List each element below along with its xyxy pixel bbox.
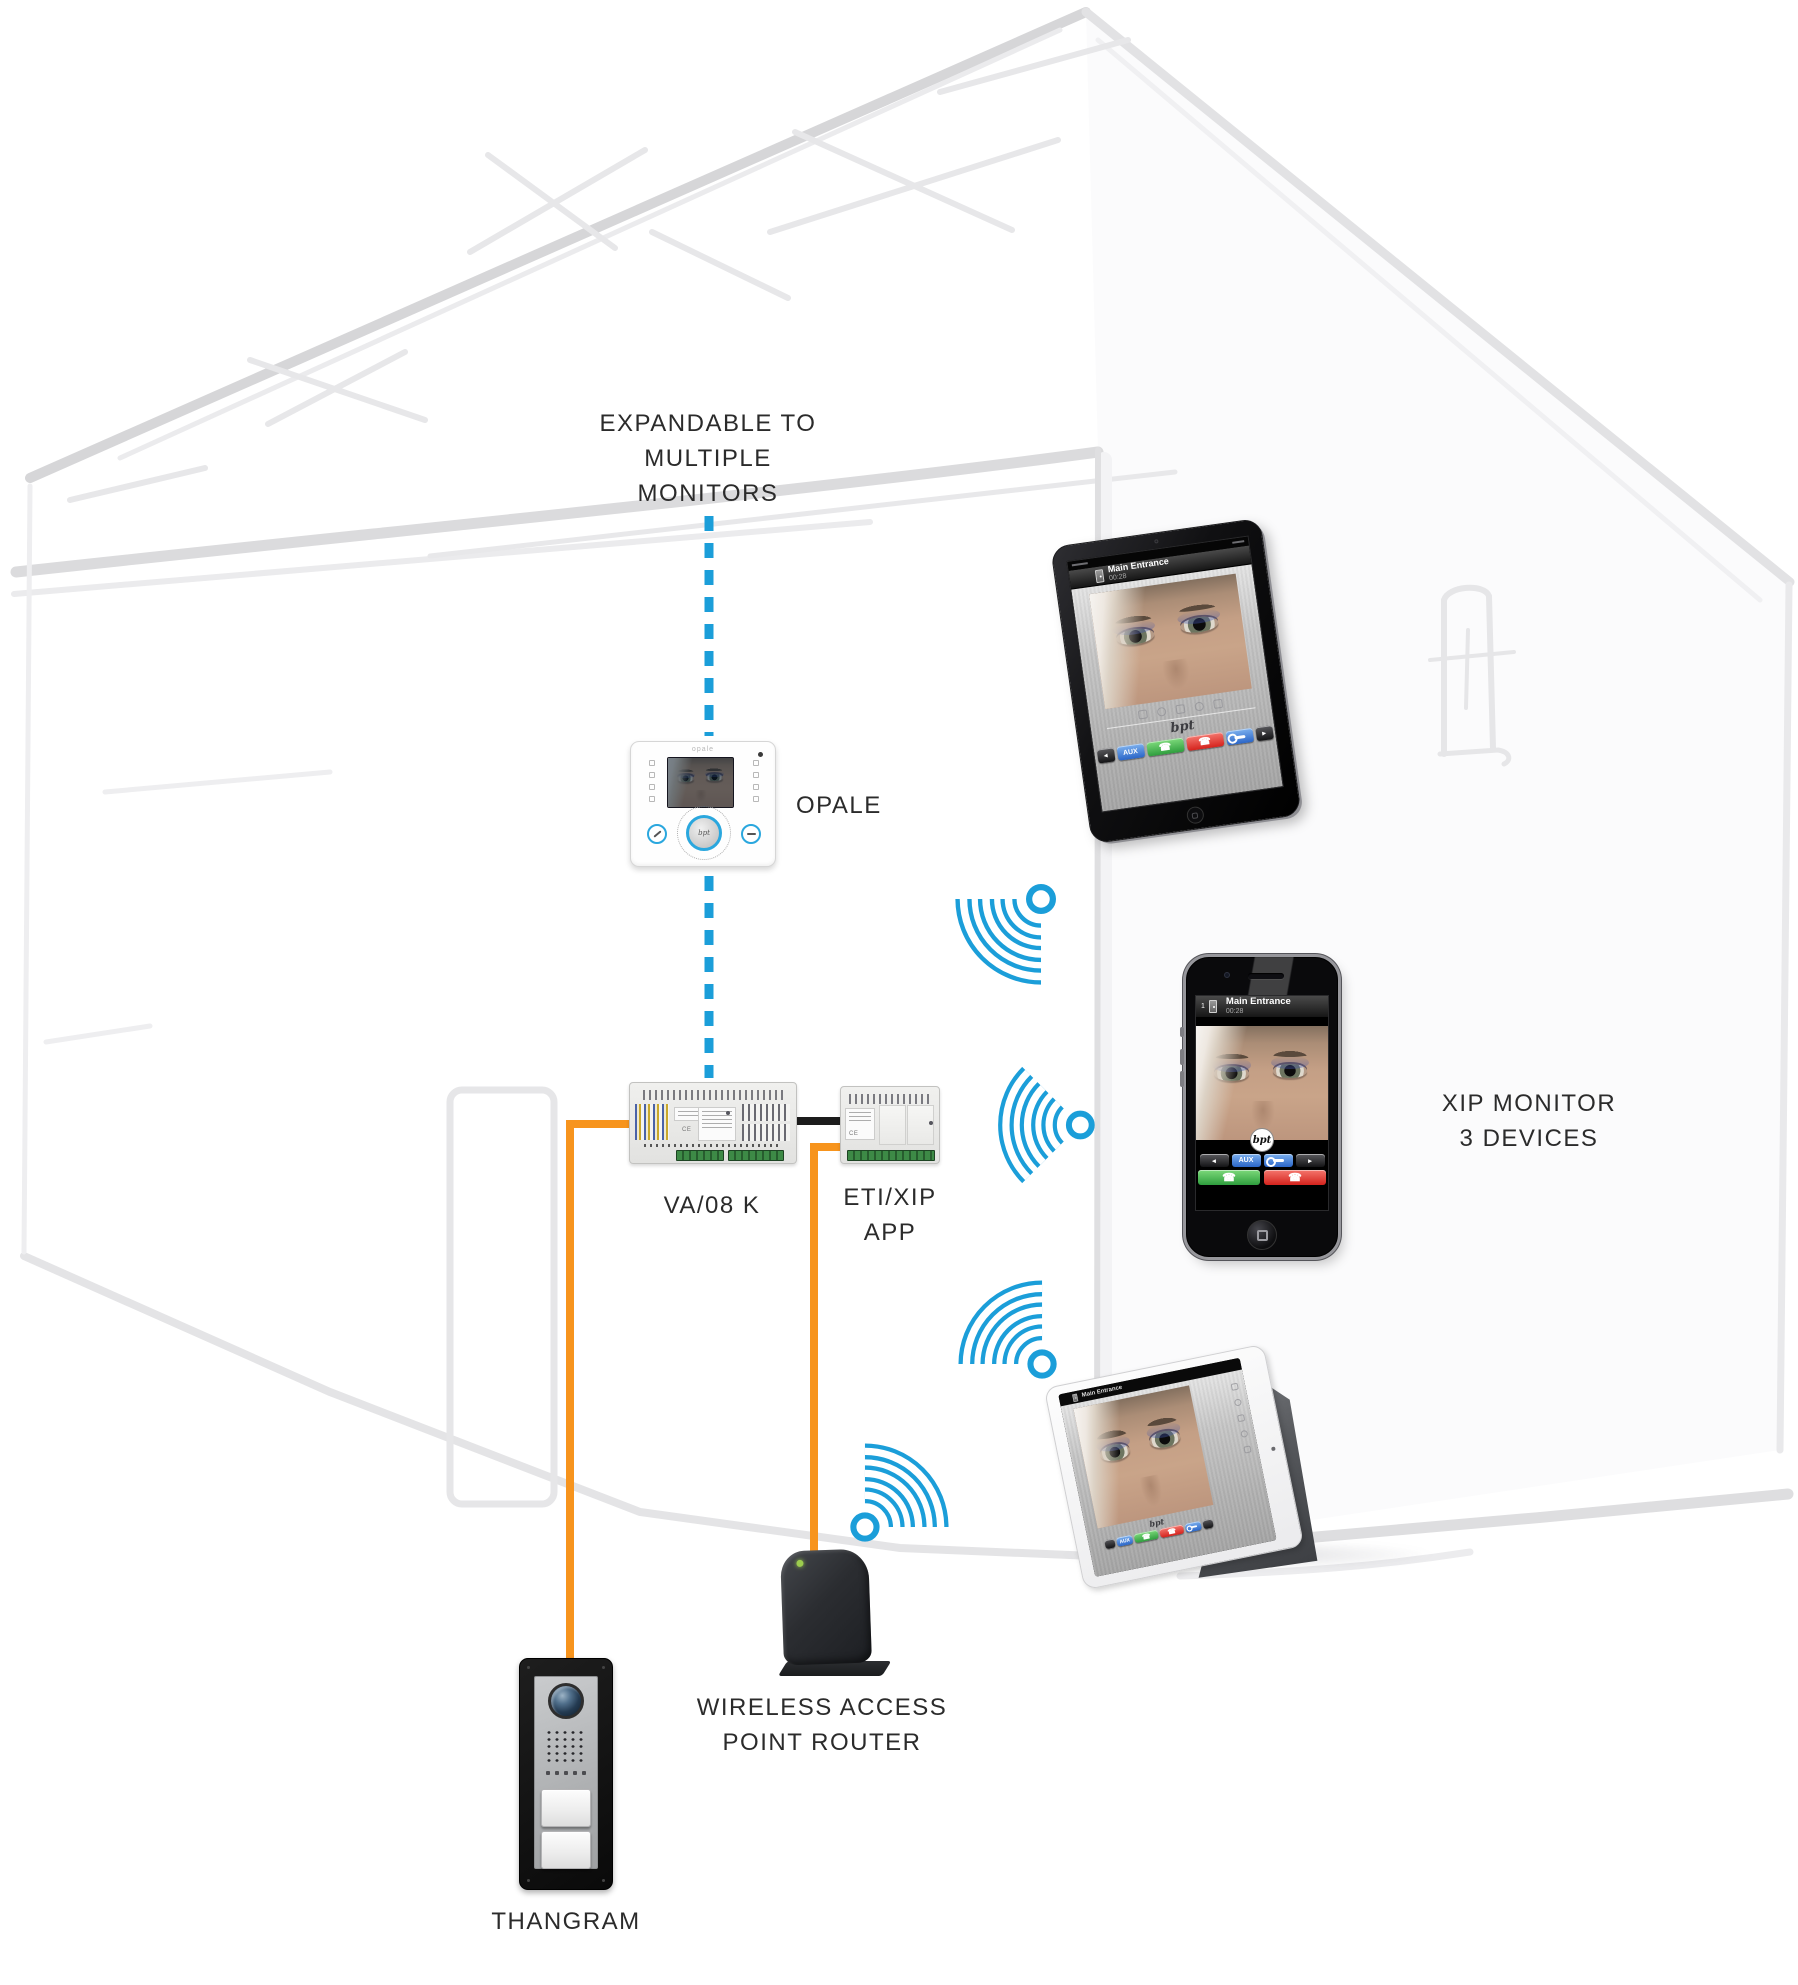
vent-slots	[643, 1090, 782, 1100]
spacer	[1196, 1018, 1328, 1026]
call-bar: 1 Main Entrance 00:28	[1196, 996, 1328, 1018]
thangram-entry-panel	[519, 1658, 613, 1890]
aux-button: AUX	[1116, 743, 1145, 761]
screw	[527, 1666, 530, 1669]
expandable-line1: EXPANDABLE TO	[600, 406, 817, 441]
hangup-button: ☎	[1185, 732, 1224, 751]
screw	[602, 1666, 605, 1669]
terminal-slats	[635, 1104, 669, 1140]
visitor-video	[1073, 1385, 1213, 1528]
entrance-icon	[1209, 1000, 1217, 1013]
router-body	[780, 1548, 872, 1665]
screen-tint	[668, 758, 733, 807]
jog-dial: bpt	[686, 815, 722, 851]
visitor-video	[1196, 1026, 1328, 1140]
call-button-2	[541, 1831, 591, 1869]
entrance-icon	[1072, 1393, 1078, 1402]
entrance-icon	[1095, 569, 1105, 583]
roof-hatch-marks	[46, 40, 1128, 1042]
va08k-module: CE	[629, 1082, 797, 1164]
vent-slats	[742, 1124, 790, 1141]
spec-label	[698, 1107, 736, 1141]
answer-button	[647, 824, 667, 844]
door-release-button	[1225, 728, 1254, 746]
router-line2: POINT ROUTER	[697, 1725, 948, 1760]
app-panel: bpt AUX ☎ ☎	[1061, 1370, 1277, 1577]
volume-down-button	[1180, 1071, 1184, 1087]
vent-slats	[742, 1104, 790, 1121]
camera-next-button: ▸	[1255, 725, 1274, 741]
etixip-line2: APP	[843, 1215, 936, 1250]
mute-switch	[1180, 1027, 1184, 1037]
tablet-screen: Main Entrance bpt AUX ☎ ☎	[1058, 1358, 1276, 1577]
green-terminal	[728, 1150, 784, 1161]
aux-button: AUX	[1116, 1535, 1133, 1547]
wifi-icon	[966, 1288, 1053, 1375]
xip-line2: 3 DEVICES	[1442, 1121, 1616, 1156]
door-release-button	[1264, 1154, 1293, 1167]
front-panel	[907, 1105, 934, 1145]
camera-prev-button: ◂	[1096, 747, 1115, 763]
speaker-grille	[545, 1729, 587, 1765]
opale-screen	[667, 757, 734, 808]
iphone-screen: 1 Main Entrance 00:28 bpt ◂ AUX ▸	[1195, 995, 1329, 1211]
etixip-module: CE	[840, 1086, 940, 1164]
front-camera-icon	[1224, 972, 1230, 978]
iphone-device: 1 Main Entrance 00:28 bpt ◂ AUX ▸	[1186, 957, 1338, 1257]
bpt-logo: bpt	[1169, 718, 1195, 736]
ce-mark: CE	[682, 1127, 691, 1133]
expandable-label: EXPANDABLE TO MULTIPLE MONITORS	[600, 406, 817, 511]
function-icons-right	[753, 760, 759, 802]
wifi-icon	[964, 887, 1053, 976]
tablet-device: Main Entrance bpt AUX ☎ ☎	[1044, 1344, 1305, 1591]
house-sketch	[0, 0, 1798, 1985]
expandable-line2: MULTIPLE	[600, 441, 817, 476]
router-label: WIRELESS ACCESS POINT ROUTER	[697, 1690, 948, 1760]
router-line1: WIRELESS ACCESS	[697, 1690, 948, 1725]
answer-button: ☎	[1134, 1530, 1159, 1544]
front-panel	[879, 1105, 906, 1145]
line-badge: 1	[1201, 1003, 1205, 1010]
aux-button-row: ◂ AUX ▸	[1200, 1154, 1325, 1167]
opale-print: opale	[631, 746, 775, 753]
indicator-dot	[726, 1111, 730, 1115]
earpiece-speaker	[1248, 973, 1284, 979]
thangram-label: THANGRAM	[491, 1904, 640, 1939]
screw	[602, 1879, 605, 1882]
opale-monitor: opale bpt	[630, 741, 776, 867]
answer-button: ☎	[1198, 1170, 1260, 1185]
green-terminal	[676, 1150, 724, 1161]
answer-button-row: ☎ ☎	[1198, 1170, 1326, 1185]
xip-monitor-label: XIP MONITOR 3 DEVICES	[1442, 1086, 1616, 1156]
ipad-device: Main Entrance 00:28 bpt ◂ AUX ☎ ☎	[1050, 518, 1302, 845]
volume-up-button	[1180, 1049, 1184, 1065]
ce-mark: CE	[849, 1131, 858, 1137]
panel-faceplate	[534, 1676, 598, 1869]
function-icons-left	[649, 760, 655, 802]
camera-lens	[548, 1683, 584, 1719]
mute-button	[741, 824, 761, 844]
indicator-dot	[929, 1121, 933, 1125]
expandable-line3: MONITORS	[600, 476, 817, 511]
opale-label: OPALE	[796, 788, 882, 823]
hangup-button: ☎	[1159, 1524, 1184, 1538]
hangup-button: ☎	[1264, 1170, 1326, 1185]
status-led	[796, 1560, 803, 1567]
signal-icons	[535, 1771, 597, 1775]
green-terminal	[847, 1150, 935, 1161]
visitor-video	[1089, 574, 1252, 709]
call-controls: bpt ◂ AUX ▸ ☎ ☎	[1196, 1140, 1328, 1210]
wifi-icon	[853, 1451, 940, 1538]
camera-next-button: ▸	[1296, 1154, 1325, 1167]
va08k-label: VA/08 K	[664, 1188, 761, 1223]
etixip-line1: ETI/XIP	[843, 1180, 936, 1215]
ipad-screen: Main Entrance 00:28 bpt ◂ AUX ☎ ☎	[1066, 536, 1284, 813]
etixip-label: ETI/XIP APP	[843, 1180, 936, 1250]
proximity-sensor	[758, 752, 763, 757]
vent-slots	[849, 1094, 931, 1104]
aux-button: AUX	[1232, 1154, 1261, 1167]
answer-button: ☎	[1146, 738, 1185, 757]
app-panel: bpt ◂ AUX ☎ ☎ ▸	[1071, 564, 1282, 811]
diagram-canvas: EXPANDABLE TO MULTIPLE MONITORS OPALE VA…	[0, 0, 1798, 1985]
call-timer: 00:28	[1226, 1008, 1291, 1016]
xip-line1: XIP MONITOR	[1442, 1086, 1616, 1121]
call-title: Main Entrance	[1226, 997, 1291, 1007]
call-button-1	[541, 1789, 591, 1827]
wifi-icon	[975, 1064, 1096, 1185]
wireless-router	[776, 1548, 886, 1676]
home-button	[1247, 1220, 1277, 1250]
camera-prev-button: ◂	[1200, 1154, 1229, 1167]
screw	[527, 1879, 530, 1882]
screw-row	[644, 1144, 782, 1147]
